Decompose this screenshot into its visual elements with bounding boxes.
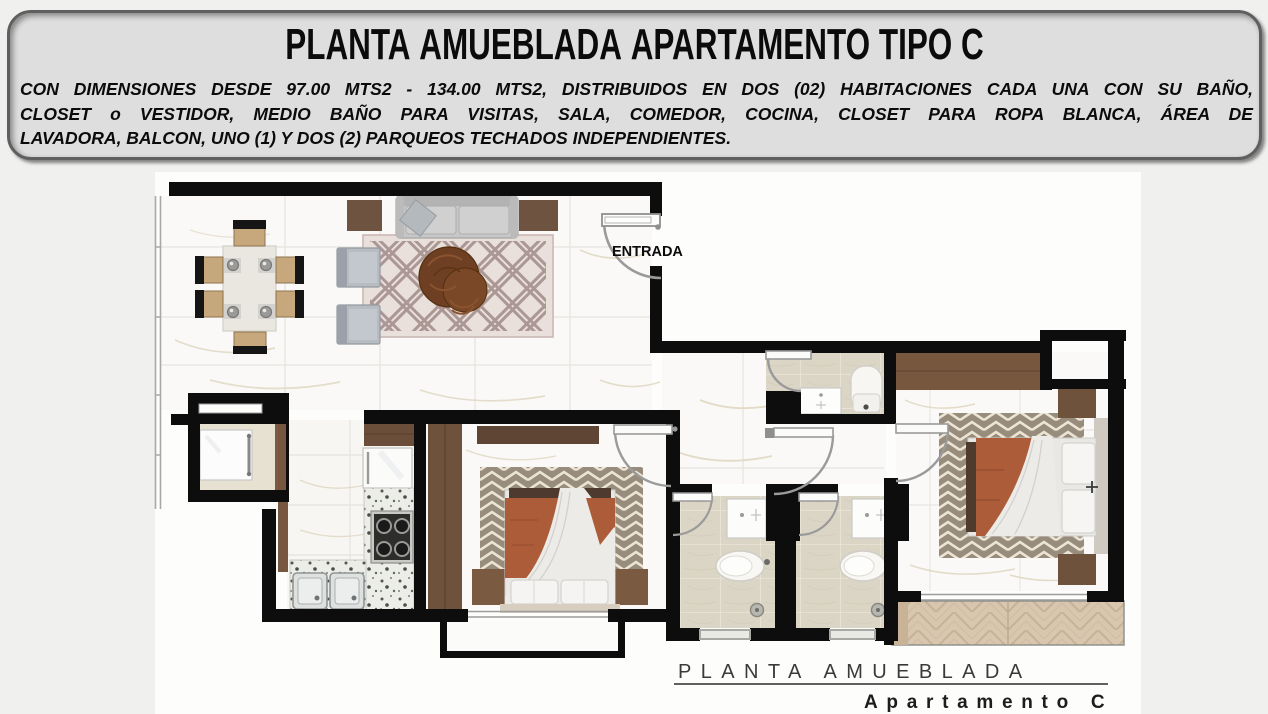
svg-text:PLANTA AMUEBLADA: PLANTA AMUEBLADA	[678, 661, 1031, 683]
svg-text:Apartamento C: Apartamento C	[864, 692, 1113, 713]
svg-text:ENTRADA: ENTRADA	[612, 244, 683, 260]
